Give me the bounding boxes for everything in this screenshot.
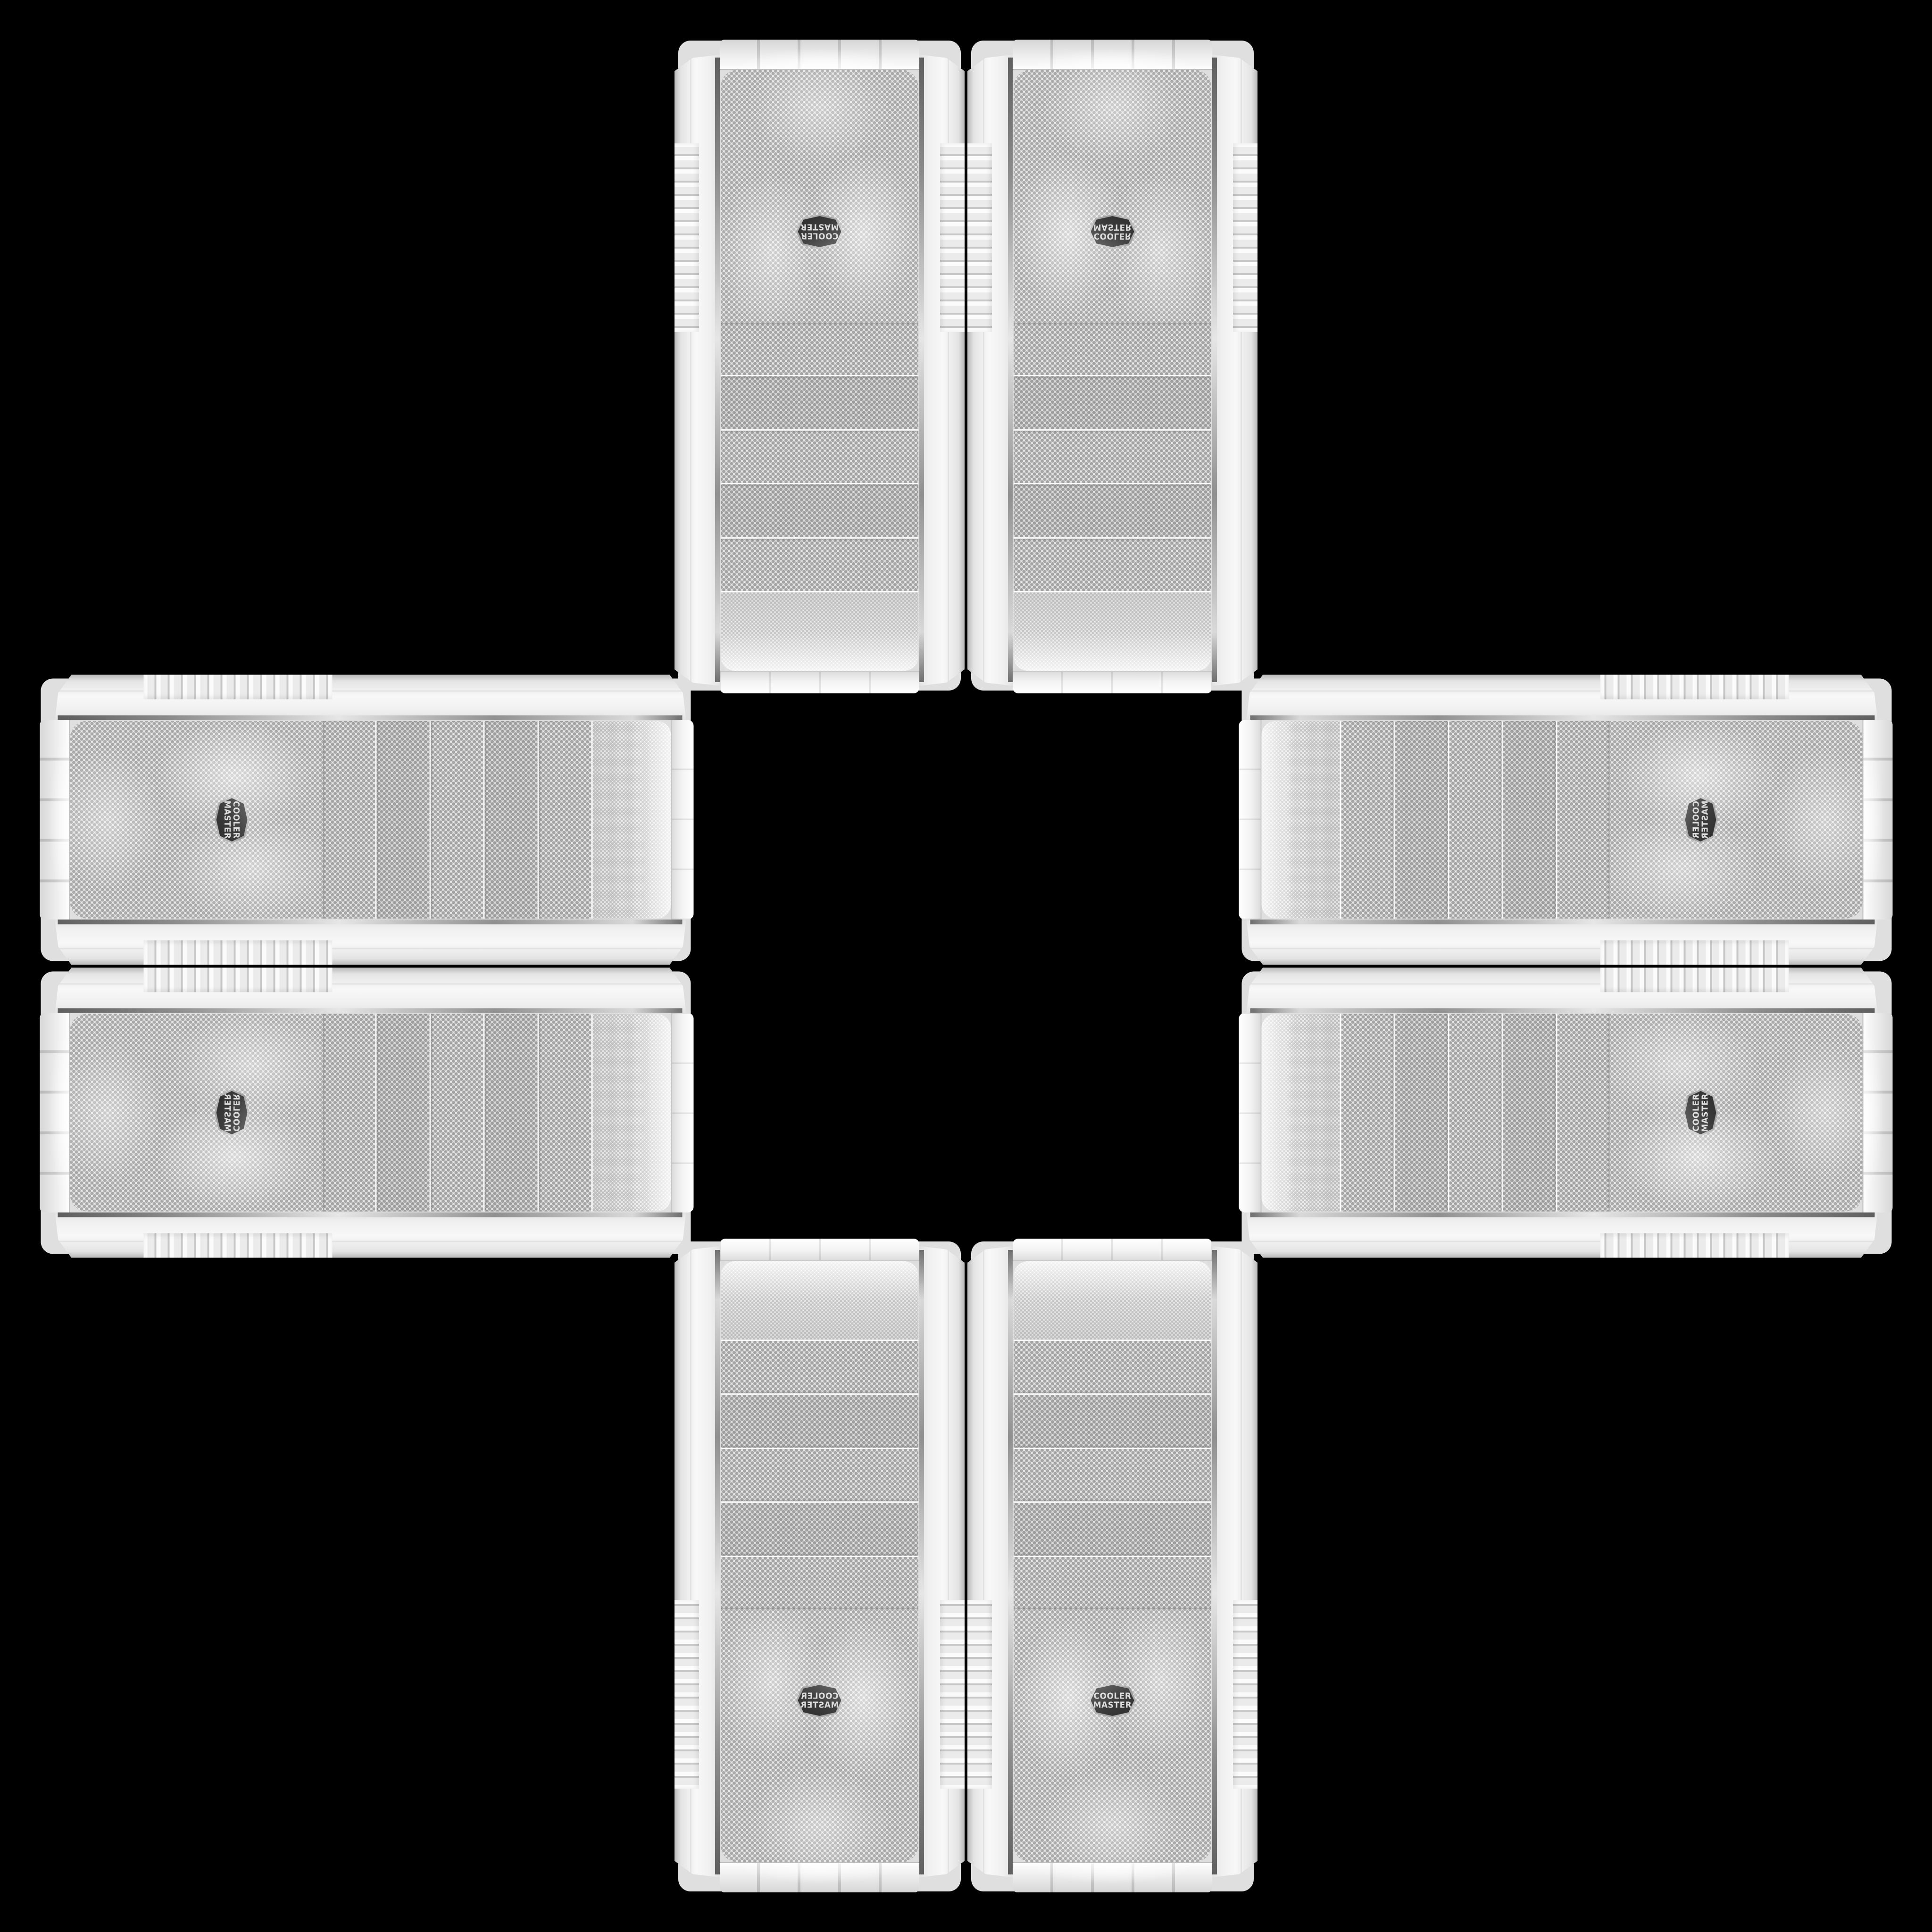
chevron-rib-stack-right xyxy=(1233,143,1257,332)
chevron-rib-stack-right xyxy=(675,1600,699,1789)
drive-bay-cover xyxy=(1501,1014,1555,1211)
chrome-trim-left xyxy=(1250,715,1874,720)
chevron-rib-stack-left xyxy=(143,675,332,699)
chrome-trim-right xyxy=(715,58,720,682)
side-column-right xyxy=(55,919,686,965)
top-bezel-lip xyxy=(671,720,693,919)
side-column-left xyxy=(55,675,686,720)
top-bezel-lip xyxy=(1013,1239,1212,1261)
curved-top-mesh-section xyxy=(1261,1014,1340,1211)
chrome-trim-right xyxy=(1212,58,1217,682)
curved-top-mesh-section xyxy=(1014,592,1211,671)
drive-bay-area xyxy=(323,721,592,918)
cooler-master-logo-hexagon-icon: COOLER MASTER xyxy=(215,1091,248,1134)
logo-text-line2: MASTER xyxy=(1093,1700,1132,1709)
side-column-left xyxy=(919,55,965,686)
chrome-trim-right xyxy=(58,919,682,924)
front-mesh-panel: COOLER MASTER xyxy=(1014,1609,1211,1862)
chrome-trim-right xyxy=(1250,1008,1874,1013)
chevron-rib-stack-right xyxy=(143,967,332,992)
drive-bay-cover xyxy=(431,721,484,918)
bottom-foot-bezel xyxy=(1862,720,1892,919)
chevron-rib-stack-right xyxy=(1600,967,1789,992)
logo-text-line1: COOLER xyxy=(1691,801,1700,839)
drive-bay-cover xyxy=(721,1340,918,1393)
pc-case-top-right: COOLER MASTER xyxy=(967,39,1257,695)
cooler-master-logo-badge: COOLER MASTER xyxy=(796,1682,843,1719)
drive-bay-cover xyxy=(484,721,538,918)
drive-bay-cover xyxy=(539,1014,592,1211)
side-column-left xyxy=(967,55,1013,686)
chrome-trim-right xyxy=(58,1008,682,1013)
front-mesh-panel: COOLER MASTER xyxy=(70,721,323,918)
cooler-master-logo-badge: COOLER MASTER xyxy=(796,213,843,250)
chevron-rib-stack-right xyxy=(1233,1600,1257,1789)
side-column-left xyxy=(1246,1212,1877,1257)
drive-bay-cover xyxy=(1014,1448,1211,1501)
drive-bay-area xyxy=(721,1340,918,1609)
drive-bay-cover xyxy=(721,431,918,484)
pc-case-right-top: COOLER MASTER xyxy=(1237,675,1893,965)
drive-bay-area xyxy=(1340,721,1609,918)
top-bezel-lip xyxy=(1239,1013,1261,1212)
cooler-master-logo-hexagon-icon: COOLER MASTER xyxy=(1684,1091,1717,1134)
drive-bay-area xyxy=(323,1014,592,1211)
bottom-foot-bezel xyxy=(1013,1862,1212,1892)
logo-text-line2: MASTER xyxy=(1700,800,1709,839)
drive-bay-cover xyxy=(1393,721,1447,918)
logo-text-line2: MASTER xyxy=(223,800,232,839)
drive-bay-cover xyxy=(1556,1014,1609,1211)
bottom-foot-bezel xyxy=(720,40,919,70)
pc-case-bottom-left: COOLER MASTER xyxy=(675,1237,965,1893)
drive-bay-cover xyxy=(1448,721,1501,918)
side-column-left xyxy=(919,1246,965,1877)
top-bezel-lip xyxy=(720,1239,919,1261)
logo-text-line2: MASTER xyxy=(1093,223,1132,232)
drive-bay-cover xyxy=(1014,1393,1211,1447)
side-column-right xyxy=(675,55,720,686)
side-column-right xyxy=(1212,1246,1257,1877)
drive-bay-cover xyxy=(1014,431,1211,484)
curved-top-mesh-section xyxy=(592,721,671,918)
curved-top-mesh-section xyxy=(592,1014,671,1211)
chrome-trim-left xyxy=(58,1212,682,1217)
drive-bay-cover xyxy=(1014,1556,1211,1609)
chrome-trim-left xyxy=(1008,1250,1013,1874)
pc-case-bottom-right: COOLER MASTER xyxy=(967,1237,1257,1893)
chrome-trim-right xyxy=(715,1250,720,1874)
logo-text-line2: MASTER xyxy=(223,1093,232,1132)
front-panel: COOLER MASTER xyxy=(39,720,695,919)
side-column-right xyxy=(1246,967,1877,1013)
front-panel: COOLER MASTER xyxy=(1013,39,1212,695)
drive-bay-cover xyxy=(721,1556,918,1609)
side-column-right xyxy=(1212,55,1257,686)
chrome-trim-right xyxy=(1250,919,1874,924)
curved-top-mesh-section xyxy=(1014,1261,1211,1340)
chevron-rib-stack-left xyxy=(1600,1233,1789,1257)
chevron-rib-stack-left xyxy=(143,1233,332,1257)
front-panel: COOLER MASTER xyxy=(720,1237,919,1893)
cooler-master-logo-hexagon-icon: COOLER MASTER xyxy=(798,215,841,248)
drive-bay-cover xyxy=(721,484,918,538)
drive-bay-area xyxy=(1340,1014,1609,1211)
drive-bay-cover xyxy=(1501,721,1555,918)
drive-bay-area xyxy=(721,323,918,592)
pc-case-top-left: COOLER MASTER xyxy=(675,39,965,695)
side-column-left xyxy=(1246,675,1877,720)
front-mesh-panel: COOLER MASTER xyxy=(70,1014,323,1211)
top-bezel-lip xyxy=(720,671,919,693)
drive-bay-area xyxy=(1014,1340,1211,1609)
side-column-left xyxy=(55,1212,686,1257)
cooler-master-logo-badge: COOLER MASTER xyxy=(1089,213,1136,250)
drive-bay-cover xyxy=(539,721,592,918)
cooler-master-logo-badge: COOLER MASTER xyxy=(1089,1682,1136,1719)
drive-bay-cover xyxy=(1448,1014,1501,1211)
chrome-trim-left xyxy=(919,58,924,682)
logo-text-line2: MASTER xyxy=(800,1700,839,1709)
chrome-trim-left xyxy=(919,1250,924,1874)
drive-bay-cover xyxy=(431,1014,484,1211)
front-mesh-panel: COOLER MASTER xyxy=(721,70,918,323)
cooler-master-logo-badge: COOLER MASTER xyxy=(213,1089,250,1136)
top-bezel-lip xyxy=(671,1013,693,1212)
drive-bay-cover xyxy=(1014,376,1211,430)
side-column-left xyxy=(967,1246,1013,1877)
cooler-master-logo-badge: COOLER MASTER xyxy=(213,796,250,843)
drive-bay-cover xyxy=(1014,323,1211,376)
chevron-rib-stack-right xyxy=(1600,940,1789,965)
bottom-foot-bezel xyxy=(40,720,70,919)
chrome-trim-left xyxy=(1008,58,1013,682)
side-column-right xyxy=(675,1246,720,1877)
chevron-rib-stack-left xyxy=(967,143,992,332)
pc-case-left-bottom: COOLER MASTER xyxy=(39,967,695,1257)
front-mesh-panel: COOLER MASTER xyxy=(721,1609,918,1862)
cooler-master-logo-hexagon-icon: COOLER MASTER xyxy=(1091,1684,1134,1717)
bottom-foot-bezel xyxy=(1862,1013,1892,1212)
front-mesh-panel: COOLER MASTER xyxy=(1609,1014,1862,1211)
logo-text-line1: COOLER xyxy=(1691,1094,1700,1132)
logo-text-line2: MASTER xyxy=(800,223,839,232)
drive-bay-cover xyxy=(721,1393,918,1447)
logo-text-line1: COOLER xyxy=(232,1094,241,1132)
chrome-trim-left xyxy=(1250,1212,1874,1217)
pc-case-left-top: COOLER MASTER xyxy=(39,675,695,965)
chevron-rib-stack-left xyxy=(940,1600,965,1789)
top-bezel-lip xyxy=(1239,720,1261,919)
drive-bay-cover xyxy=(376,1014,430,1211)
front-panel: COOLER MASTER xyxy=(1237,720,1893,919)
front-panel: COOLER MASTER xyxy=(39,1013,695,1212)
cooler-master-logo-hexagon-icon: COOLER MASTER xyxy=(798,1684,841,1717)
curved-top-mesh-section xyxy=(1261,721,1340,918)
cooler-master-logo-hexagon-icon: COOLER MASTER xyxy=(1684,798,1717,841)
drive-bay-cover xyxy=(721,323,918,376)
chevron-rib-stack-right xyxy=(143,940,332,965)
logo-text-line2: MASTER xyxy=(1700,1093,1709,1132)
chrome-trim-right xyxy=(1212,1250,1217,1874)
drive-bay-cover xyxy=(376,721,430,918)
drive-bay-cover xyxy=(1393,1014,1447,1211)
drive-bay-cover xyxy=(1556,721,1609,918)
chevron-rib-stack-left xyxy=(967,1600,992,1789)
top-bezel-lip xyxy=(1013,671,1212,693)
drive-bay-cover xyxy=(721,1501,918,1555)
drive-bay-cover xyxy=(1014,1340,1211,1393)
drive-bay-cover xyxy=(1014,539,1211,592)
drive-bay-cover xyxy=(1014,484,1211,538)
logo-text-line1: COOLER xyxy=(801,232,839,241)
front-panel: COOLER MASTER xyxy=(1237,1013,1893,1212)
drive-bay-cover xyxy=(721,376,918,430)
drive-bay-cover xyxy=(1340,721,1393,918)
bottom-foot-bezel xyxy=(720,1862,919,1892)
cooler-master-logo-hexagon-icon: COOLER MASTER xyxy=(1091,215,1134,248)
side-column-right xyxy=(55,967,686,1013)
logo-text-line1: COOLER xyxy=(1094,232,1132,241)
drive-bay-cover xyxy=(323,721,376,918)
logo-text-line1: COOLER xyxy=(232,801,241,839)
drive-bay-area xyxy=(1014,323,1211,592)
chevron-rib-stack-right xyxy=(675,143,699,332)
drive-bay-cover xyxy=(1014,1501,1211,1555)
drive-bay-cover xyxy=(721,1448,918,1501)
chevron-rib-stack-left xyxy=(940,143,965,332)
side-column-right xyxy=(1246,919,1877,965)
chrome-trim-left xyxy=(58,715,682,720)
cooler-master-logo-badge: COOLER MASTER xyxy=(1682,1089,1719,1136)
front-panel: COOLER MASTER xyxy=(720,39,919,695)
drive-bay-cover xyxy=(484,1014,538,1211)
bottom-foot-bezel xyxy=(1013,40,1212,70)
front-mesh-panel: COOLER MASTER xyxy=(1609,721,1862,918)
cooler-master-logo-badge: COOLER MASTER xyxy=(1682,796,1719,843)
logo-text-line1: COOLER xyxy=(1094,1691,1132,1700)
front-panel: COOLER MASTER xyxy=(1013,1237,1212,1893)
drive-bay-cover xyxy=(1340,1014,1393,1211)
curved-top-mesh-section xyxy=(721,592,918,671)
curved-top-mesh-section xyxy=(721,1261,918,1340)
cooler-master-logo-hexagon-icon: COOLER MASTER xyxy=(215,798,248,841)
pc-case-right-bottom: COOLER MASTER xyxy=(1237,967,1893,1257)
black-background-canvas: COOLER MASTER xyxy=(0,0,1932,1932)
drive-bay-cover xyxy=(721,539,918,592)
bottom-foot-bezel xyxy=(40,1013,70,1212)
logo-text-line1: COOLER xyxy=(801,1691,839,1700)
front-mesh-panel: COOLER MASTER xyxy=(1014,70,1211,323)
drive-bay-cover xyxy=(323,1014,376,1211)
chevron-rib-stack-left xyxy=(1600,675,1789,699)
